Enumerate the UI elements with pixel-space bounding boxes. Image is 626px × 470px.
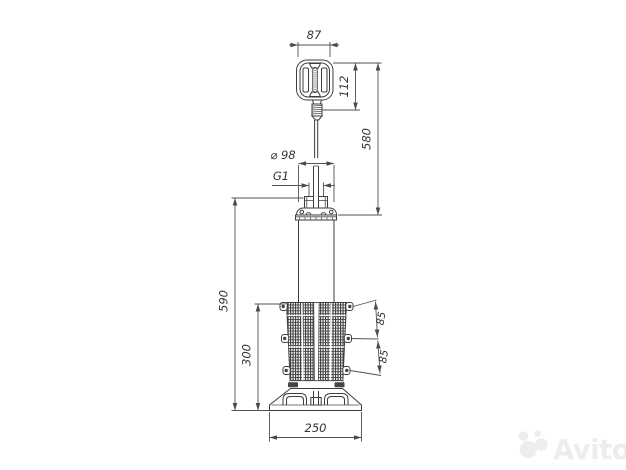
dimension-float-width-label: 87 [307,28,322,42]
dimension-arrow-icon [233,403,238,411]
avito-logo-icon [519,430,548,458]
dimension-arrow-icon [330,43,338,48]
dimension-strainer-height-label: 300 [240,344,254,366]
dimension-overall-height-label: 590 [217,290,231,312]
dimension-arrow-icon [353,103,358,111]
dimension-arrow-icon [256,304,261,312]
pump-strainer [280,303,353,389]
dimension-arrow-icon [256,403,261,411]
dimension-arrow-icon [270,435,278,440]
dimension-outlet-thread-label: G1 [273,169,289,183]
dimension-arrow-icon [324,183,332,188]
dimension-float-height-label: 112 [337,76,351,98]
pump-base [270,389,362,411]
cable-gland-collar [313,100,322,104]
dimension-float-to-pump-label: 580 [360,128,374,150]
dimension-arrow-icon [376,208,381,216]
dimension-pump-diameter-label: ⌀ 98 [270,148,295,162]
dimension-clip-spacing-lower-label: 85 [377,349,391,365]
dimension-arrow-icon [376,341,381,349]
strainer-center-rib [314,303,319,389]
cylinder-shell [299,220,335,303]
pump-body-cylinder [299,220,335,303]
technical-drawing-canvas: 87 112 580 ⌀ 98 G1 [0,0,626,470]
dimension-arrow-icon [376,63,381,71]
dimension-strainer-height: 300 [240,304,286,411]
dimension-arrow-icon [291,43,299,48]
avito-wordmark: Avito [553,434,626,466]
outlet-stub-left [305,197,314,209]
strainer-pad-right [335,382,345,387]
dimension-arrow-icon [327,161,335,166]
float-switch [297,60,334,100]
dimension-base-width: 250 [270,412,362,442]
avito-watermark: Avito [519,430,626,466]
float-cable [312,100,322,158]
pump-drawing-svg: 87 112 580 ⌀ 98 G1 [0,0,626,470]
dimension-arrow-icon [373,302,378,310]
dimension-clip-spacing-upper: 85 [352,300,389,339]
cable-gland-ribs [312,105,321,114]
dimension-clip-spacing-lower: 85 [350,341,391,376]
outlet-stub-right [319,197,328,209]
pump-outlet-pipe [314,166,319,197]
dimension-arrow-icon [353,63,358,71]
cable-gland-taper [312,116,322,120]
dimension-float-width: 87 [289,28,339,57]
dimension-arrow-icon [233,198,238,206]
strainer-pad-left [288,382,298,387]
dimension-arrow-icon [299,161,307,166]
dimension-base-width-label: 250 [305,421,327,435]
dimension-arrow-icon [375,329,380,337]
dimension-outlet-thread: G1 [272,169,335,196]
dimension-arrow-icon [302,183,310,188]
dimension-arrow-icon [354,435,362,440]
dimension-arrow-icon [377,365,382,373]
dimension-clip-spacing-upper-label: 85 [374,311,388,327]
pump-top-assembly [296,197,337,221]
